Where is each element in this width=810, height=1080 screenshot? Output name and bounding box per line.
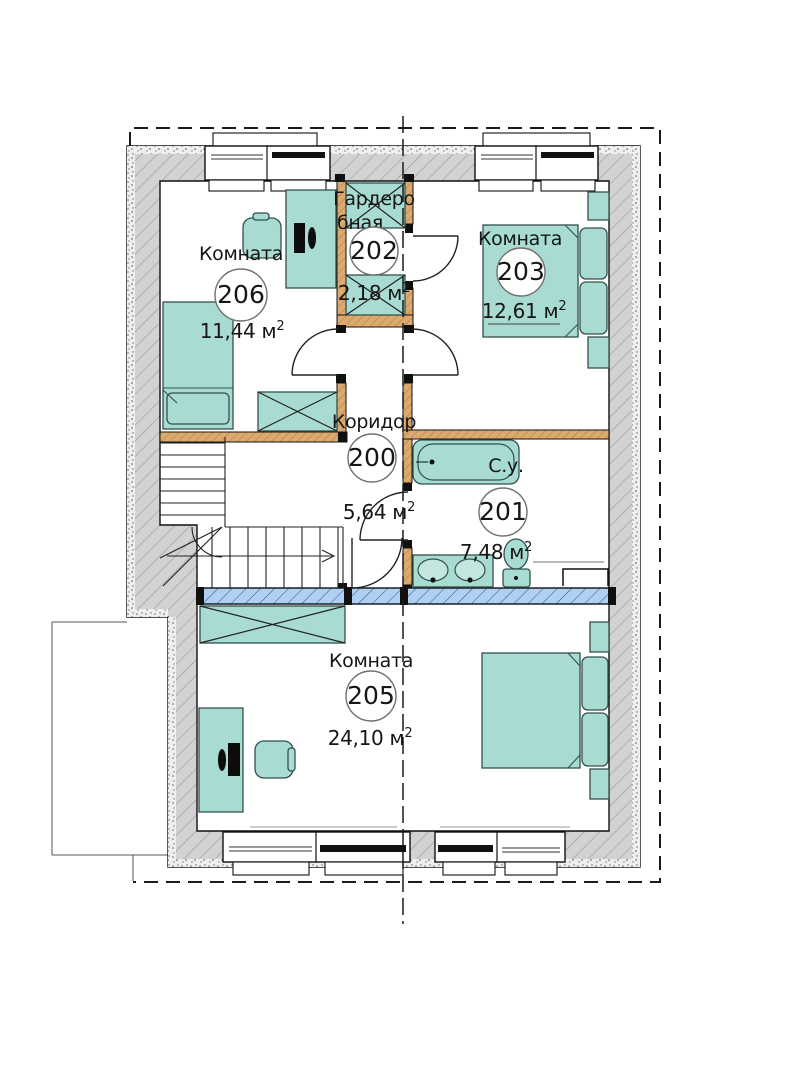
room-205-label: Комната 205 24,10 м2 bbox=[328, 650, 413, 750]
room-area: 5,64 м2 bbox=[343, 500, 415, 524]
lower-floor-reference-outline bbox=[52, 622, 168, 881]
room-area: 12,61 м2 bbox=[482, 299, 567, 323]
room-206-label: Комната 206 11,44 м2 bbox=[199, 243, 284, 343]
room-area: 7,48 м2 bbox=[460, 540, 532, 564]
wardrobe-cabinet-icon bbox=[258, 392, 337, 431]
office-chair-icon bbox=[255, 741, 295, 778]
window-top-right bbox=[475, 133, 598, 191]
room-name: Комната bbox=[329, 650, 413, 672]
window-bottom-left bbox=[223, 832, 410, 875]
room-name: Комната bbox=[478, 228, 562, 250]
room-name: С.у. bbox=[488, 455, 523, 477]
window-bottom-right bbox=[435, 832, 565, 875]
desk-icon bbox=[199, 708, 243, 812]
glass-partition bbox=[196, 587, 616, 605]
desk-icon bbox=[286, 190, 336, 288]
window-top-left bbox=[205, 133, 330, 191]
room-number: 201 bbox=[479, 497, 527, 526]
floor-plan-page: Комната 206 11,44 м2 Гардеро бная 202 2,… bbox=[0, 0, 810, 1080]
room-name-line1: Гардеро bbox=[333, 188, 415, 210]
room-number: 200 bbox=[348, 443, 396, 472]
door-room-205 bbox=[352, 538, 402, 588]
room-area: 11,44 м2 bbox=[200, 319, 285, 343]
room-number: 206 bbox=[217, 280, 265, 309]
bench-icon bbox=[533, 562, 608, 586]
room-number: 205 bbox=[347, 681, 395, 710]
door-room-206 bbox=[292, 329, 338, 375]
room-name: Комната bbox=[199, 243, 283, 265]
room-number: 202 bbox=[350, 236, 398, 265]
room-name: Коридор bbox=[332, 411, 416, 433]
bed-double-icon bbox=[482, 622, 609, 799]
door-wardrobe-202 bbox=[413, 236, 458, 281]
floor-plan-drawing: Комната 206 11,44 м2 Гардеро бная 202 2,… bbox=[0, 0, 810, 1080]
room-area: 2,18 м2 bbox=[338, 281, 410, 305]
room-number: 203 bbox=[497, 257, 545, 286]
door-room-203 bbox=[412, 329, 458, 375]
wardrobe-cabinet-icon bbox=[200, 606, 345, 643]
room-area: 24,10 м2 bbox=[328, 726, 413, 750]
